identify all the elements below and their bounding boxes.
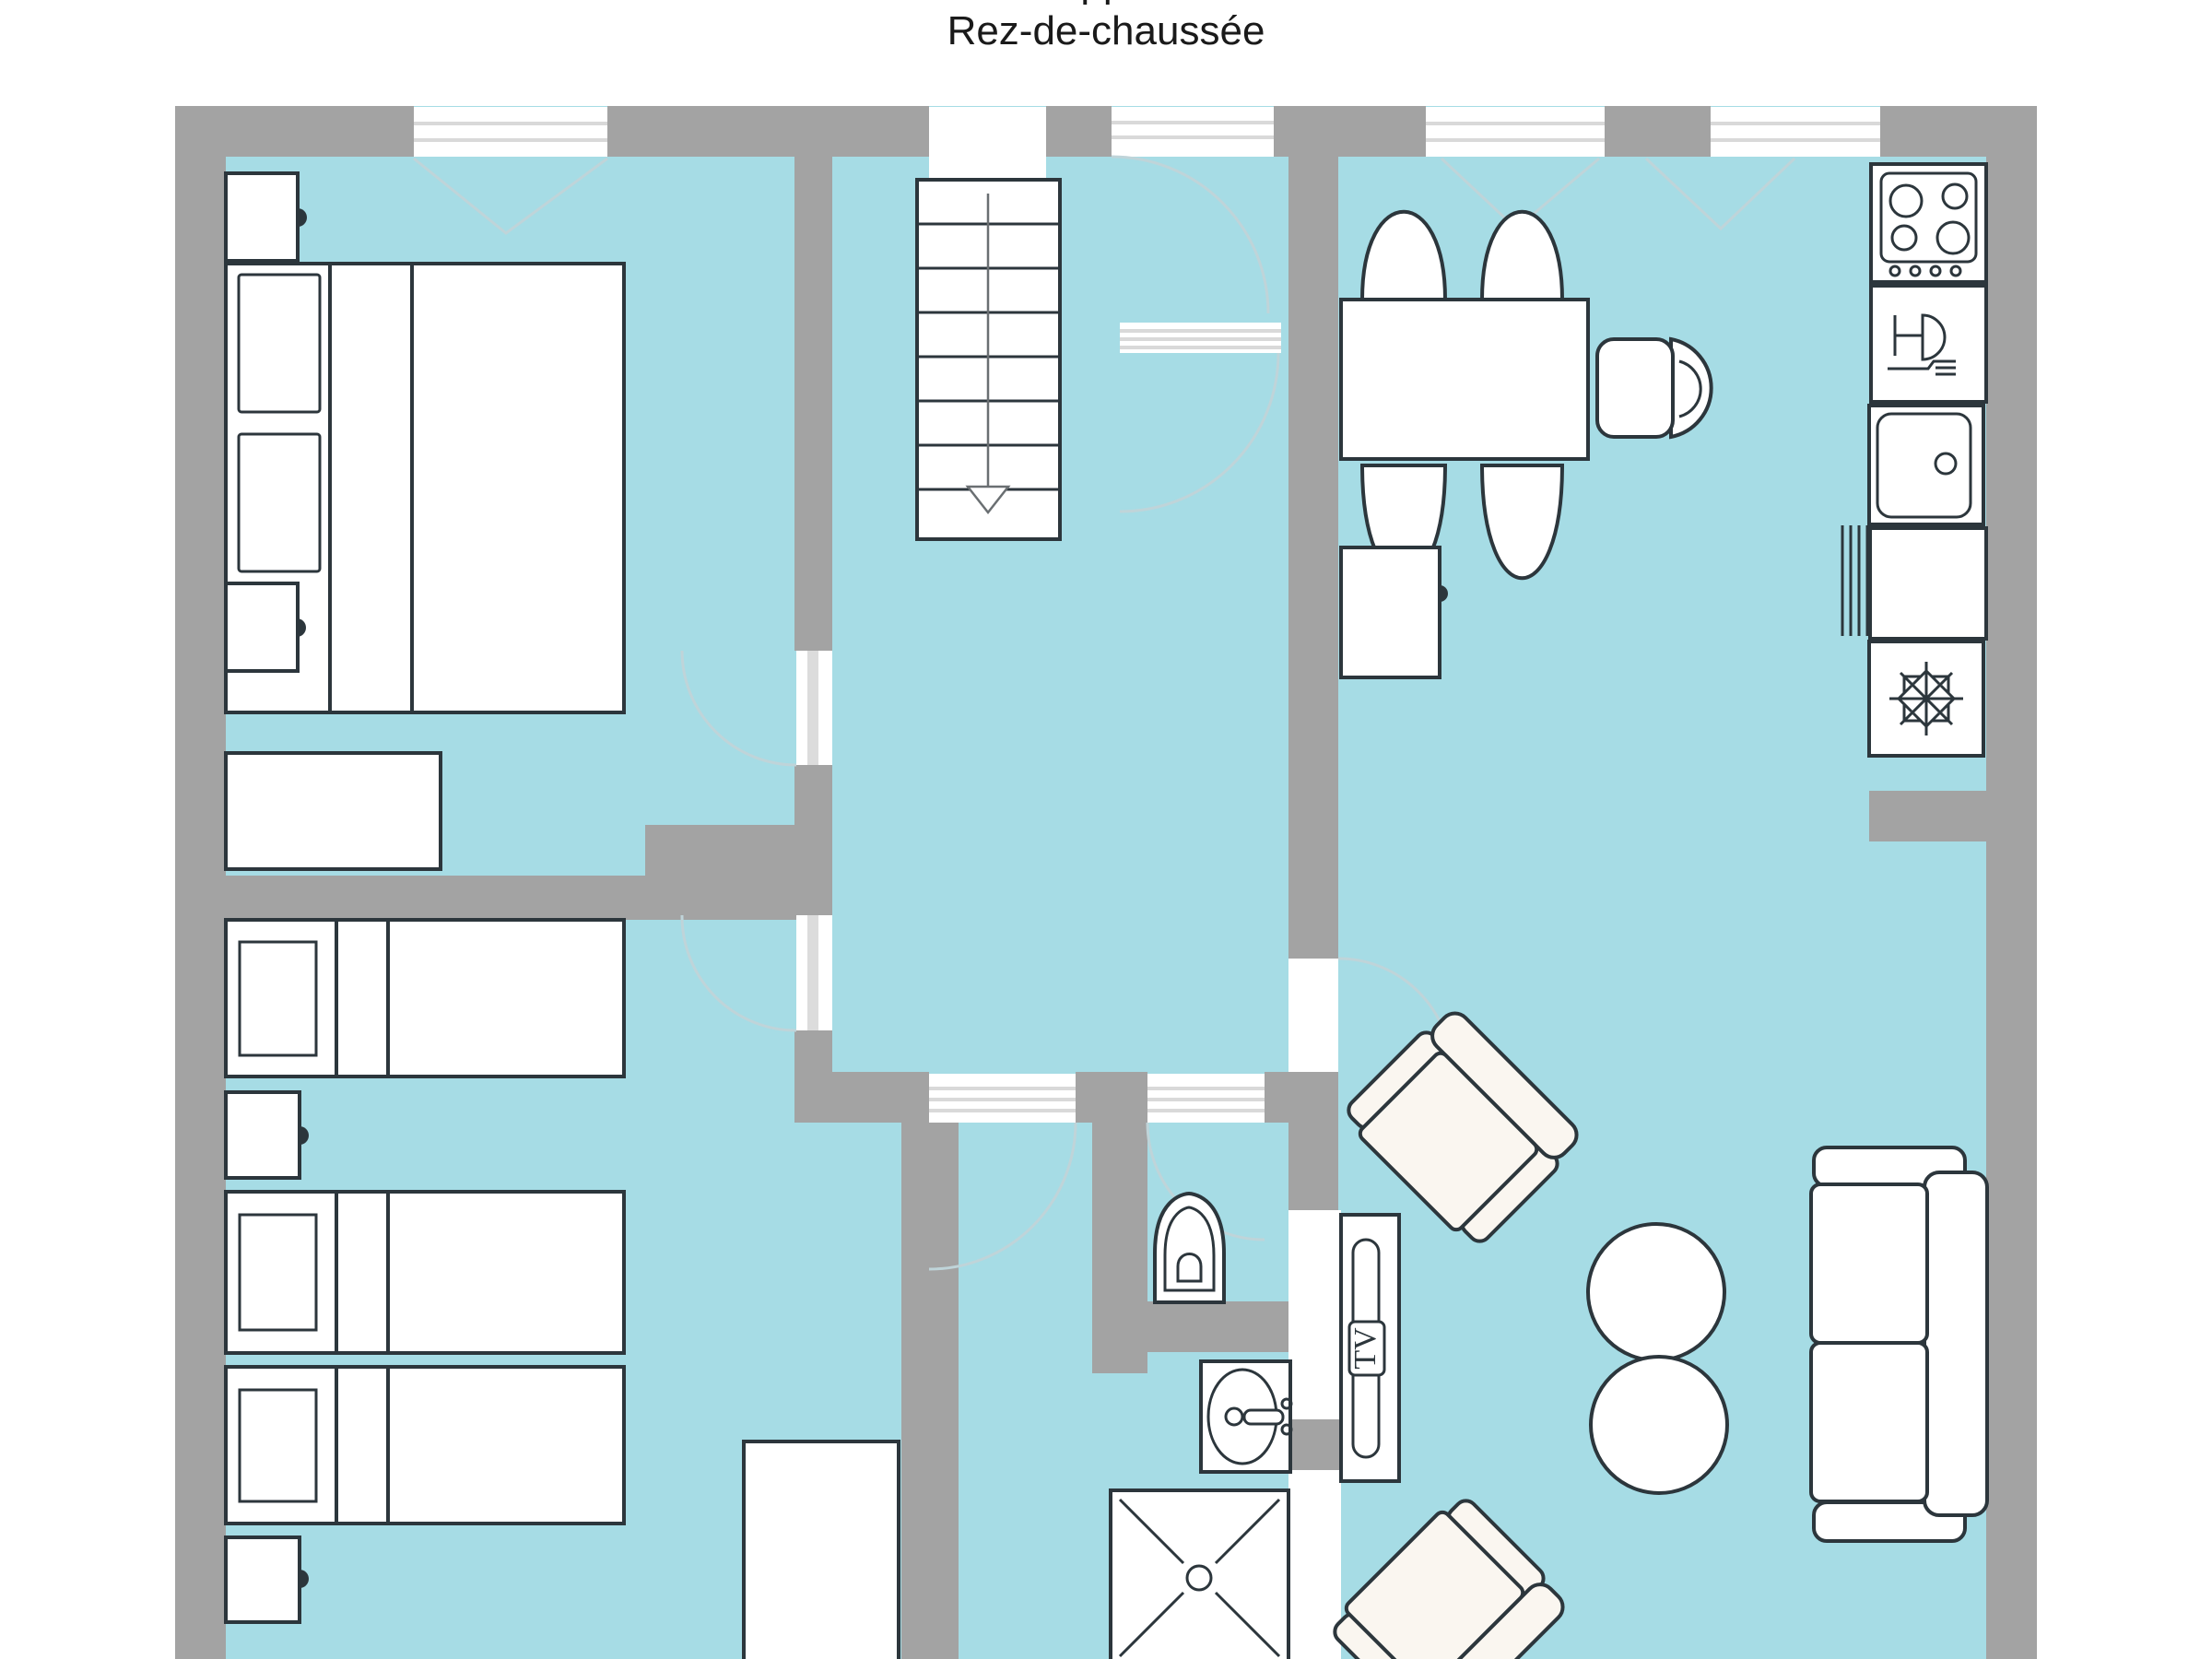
sofa (1811, 1147, 1987, 1541)
cooktop (1871, 164, 1986, 282)
washbasin (1201, 1361, 1291, 1472)
nightstand (226, 1537, 309, 1622)
partition-gap (1288, 1210, 1341, 1419)
floorplan-drawing: TV (0, 0, 2212, 1659)
round-table (1591, 1357, 1727, 1493)
tv-unit: TV (1341, 1215, 1399, 1481)
nightstand (226, 1092, 309, 1178)
entrance-door (1112, 107, 1274, 157)
single-bed (226, 920, 624, 1077)
wardrobe (744, 1441, 899, 1659)
sideboard (1341, 547, 1448, 677)
dishwasher (1871, 286, 1986, 402)
shower (1111, 1490, 1288, 1659)
nightstand (226, 583, 306, 671)
living-door (1288, 959, 1338, 1072)
page-title: Rez-de-chaussée (0, 7, 2212, 55)
stairwell-opening (929, 107, 1046, 184)
single-bed (226, 1192, 624, 1353)
dresser (226, 753, 441, 869)
floorplan-page: TV Plan de l'appartement 2 Rez-de-chauss… (0, 0, 2212, 1659)
round-table (1588, 1224, 1724, 1360)
nightstand (226, 173, 307, 261)
fridge-freezer (1869, 641, 1983, 756)
kitchen-sink (1869, 406, 1983, 524)
title-line1-clipped: Plan de l'appartement 2 (0, 0, 2212, 7)
snowflake-icon (1889, 662, 1963, 735)
armchair-round (1597, 339, 1712, 437)
single-bed (226, 1367, 624, 1524)
dining-table (1341, 300, 1588, 459)
tv-label: TV (1348, 1327, 1382, 1370)
staircase (917, 180, 1060, 539)
toilet (1155, 1194, 1224, 1302)
